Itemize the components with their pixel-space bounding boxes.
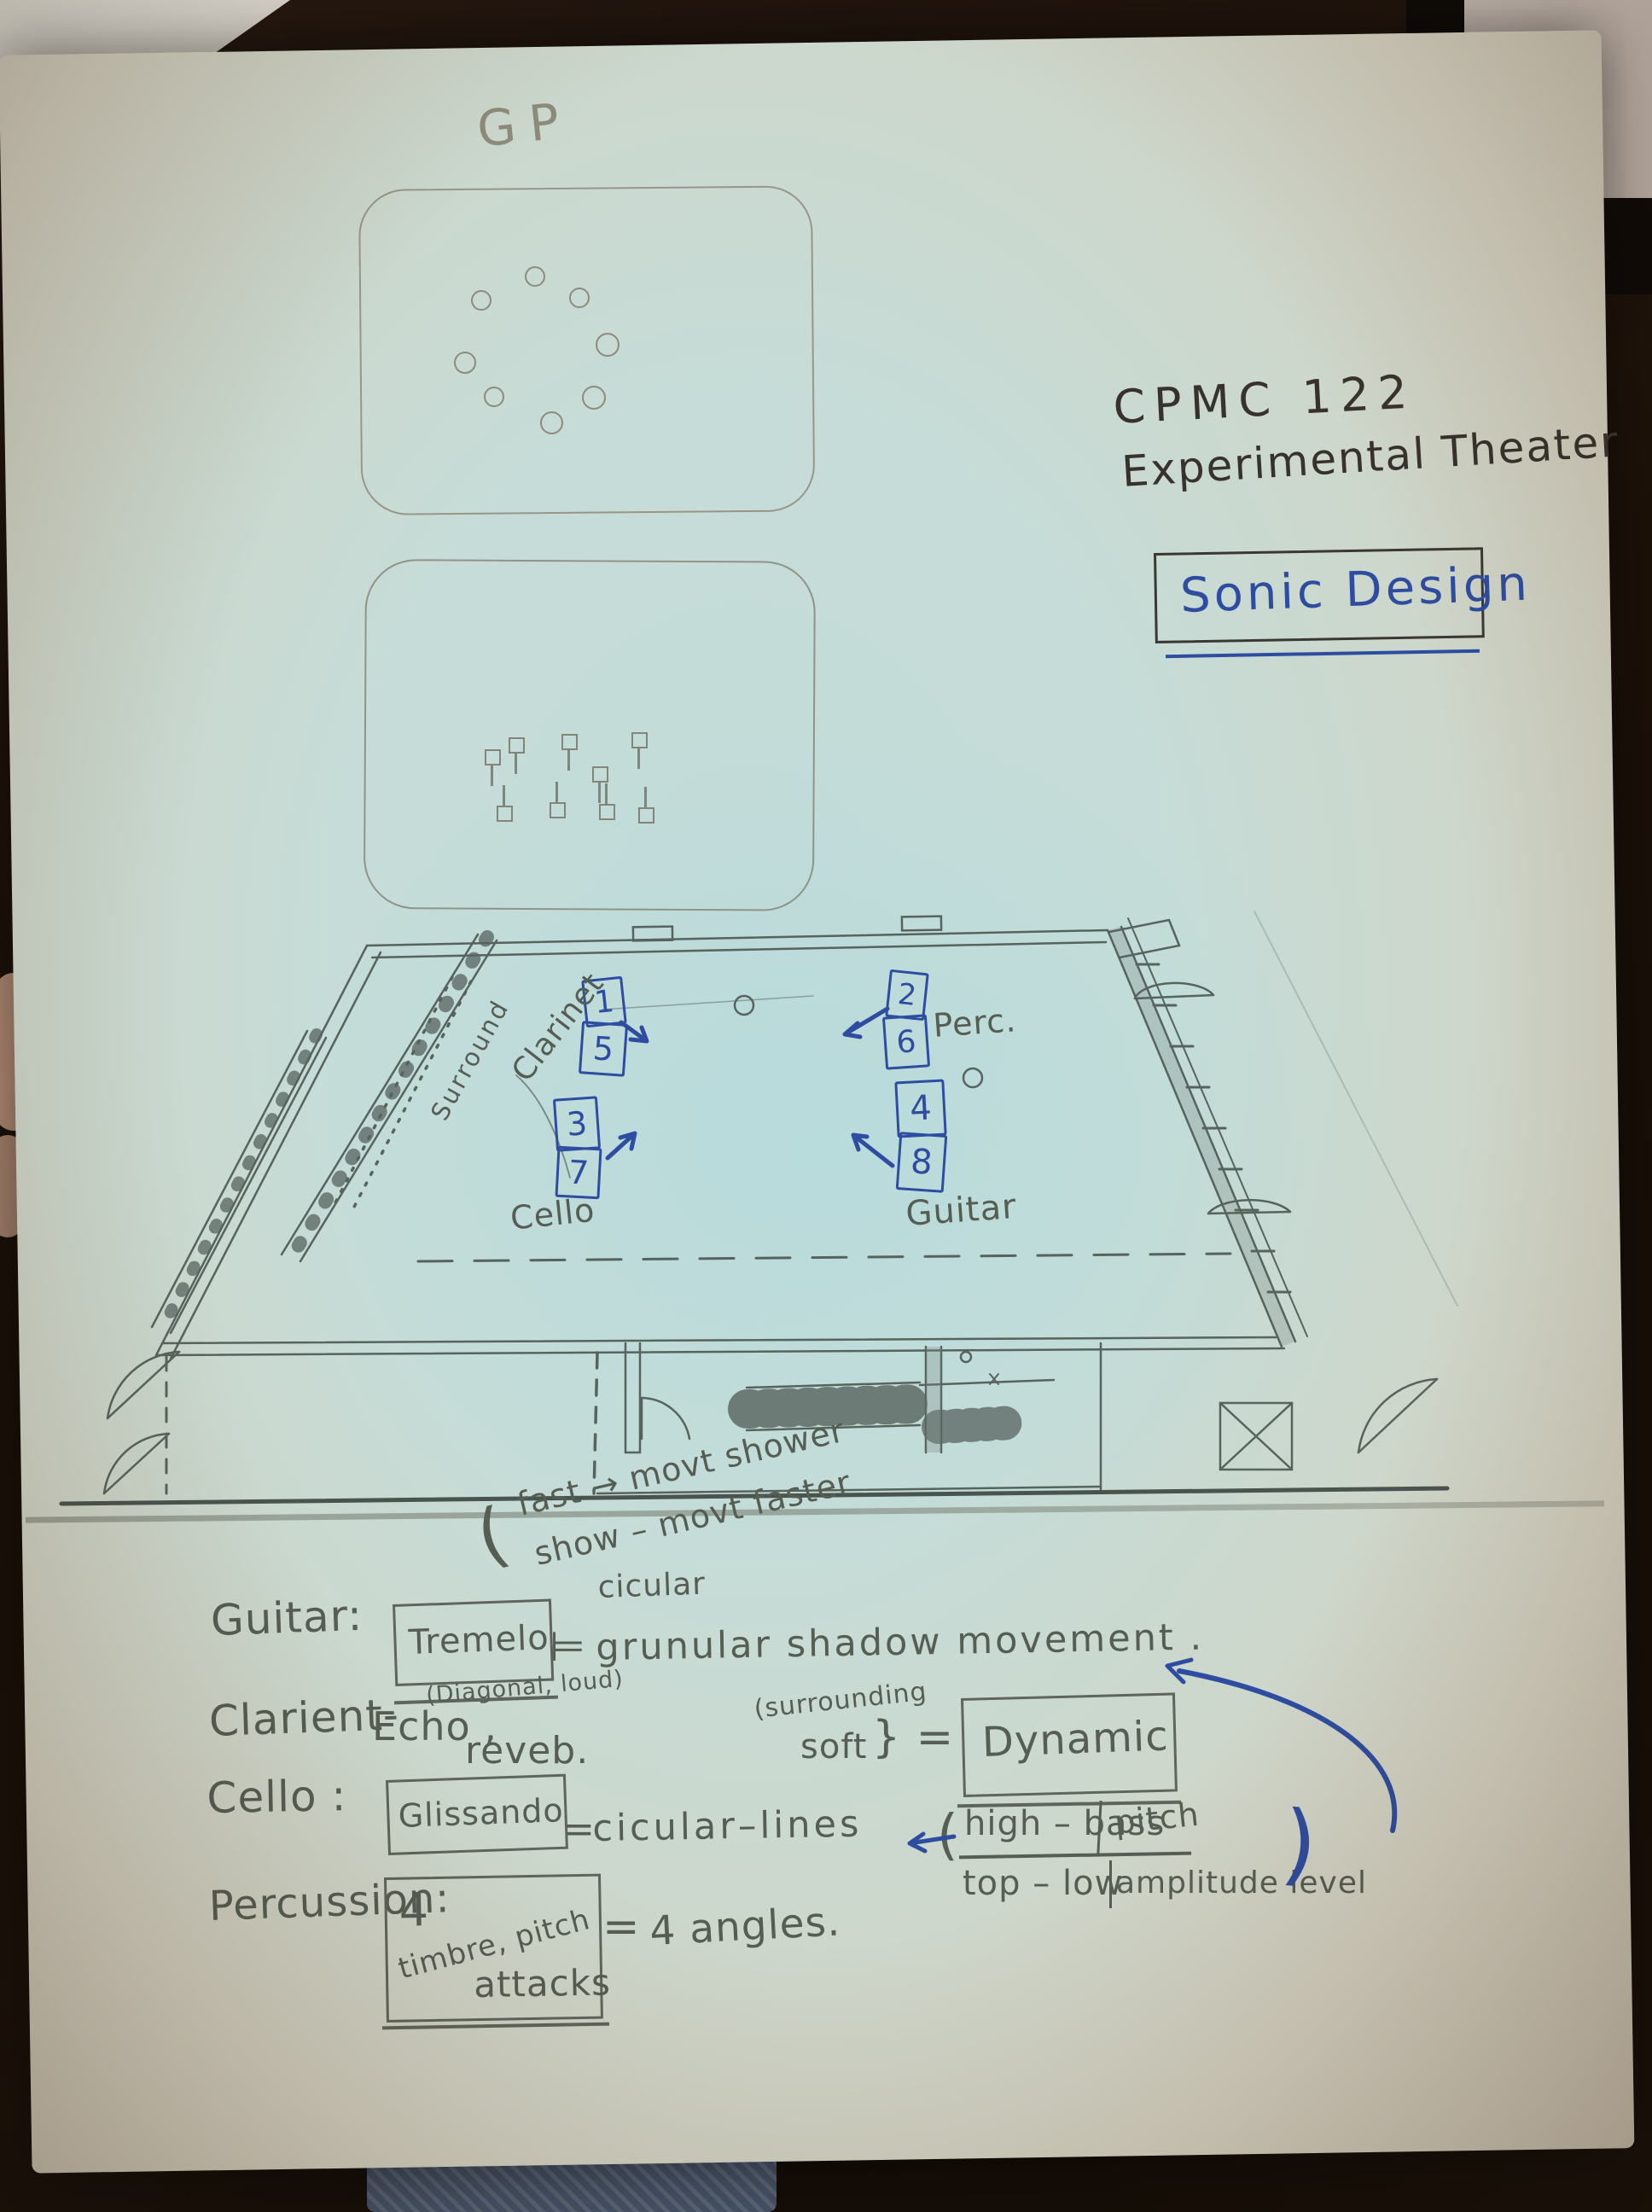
station-box-perc-6: 6 [882,1014,930,1069]
note-cello-label: Cello : [206,1771,347,1823]
gp-label: GP [474,90,575,158]
glissando-label: Glissando [398,1791,564,1835]
note-cello-text: cicular–lines [592,1802,863,1850]
perc-box-attacks: attacks [474,1961,612,2005]
station-number: 3 [565,1104,588,1144]
station-number: 2 [896,977,918,1013]
photo-of-sketch: GP CPMC 122 Experimental Theater Sonic D… [0,0,1652,2212]
note-clarinet-soft: soft [800,1727,867,1767]
station-box-cello-7: 7 [555,1146,602,1200]
note-clarinet-reverb: reveb. [465,1729,589,1773]
station-box-guitar-8: 8 [896,1132,948,1193]
fraction-bottom-left: top – low [963,1864,1123,1903]
note-guitar-label: Guitar: [210,1591,364,1645]
station-number: 5 [591,1029,614,1068]
perc-box-number: 4 [398,1883,429,1937]
station-box-guitar-4: 4 [894,1080,946,1138]
note-perc-text: 4 angles. [649,1898,841,1955]
plan-perc-label: Perc. [932,1001,1018,1045]
sketch2-room-outline [364,559,816,911]
station-number: 8 [910,1142,934,1183]
note-guitar-equals: ⊨ [550,1623,586,1671]
dynamic-label: Dynamic [981,1712,1170,1767]
tremelo-label: Tremelo [408,1618,550,1662]
sketch1-room-outline [358,185,815,515]
plan-guitar-label: Guitar [905,1187,1018,1234]
station-number: 4 [909,1088,933,1128]
station-box-perc-2: 2 [885,969,929,1022]
fraction-open-paren: ( [937,1804,959,1867]
station-number: 6 [895,1024,917,1060]
note-clarinet-brace-equals: } = [872,1712,954,1763]
note-cello-equals: = [563,1807,596,1851]
station-number: 7 [567,1153,590,1191]
note-perc-equals: = [602,1901,641,1953]
station-box-clarinet-5: 5 [579,1021,628,1077]
note-guitar-above: cicular [597,1567,707,1605]
percussion-box: 4 timbre, pitch attacks [384,1874,603,2023]
fraction-bottom-right: amplitude level [1116,1866,1367,1901]
fraction-divider-bottom [1109,1860,1112,1908]
station-box-cello-3: 3 [553,1096,601,1151]
